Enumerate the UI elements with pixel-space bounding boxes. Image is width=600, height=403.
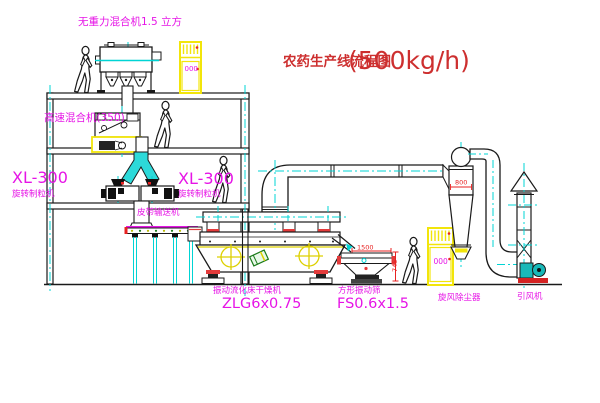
process-flow-drawing: 000 [0,0,600,403]
screen-deck-upper [341,253,392,258]
pesticide-line-flow-diagram: 000 [0,0,600,403]
screen-deck-lower [339,258,394,264]
control-cabinet-top: 000 [180,42,201,93]
cyclone-dim: 800 [455,179,467,187]
label-granulator-left-name: 旋转制粒机 [12,189,55,200]
label-cyclone: 旋风除尘器 [438,292,481,303]
cabinet-top-display: 000 [185,65,198,73]
induced-draft-fan [518,263,548,283]
screen-base-upper [355,275,379,279]
worker-figure-roof [75,46,92,92]
fluid-bed-dryer [188,206,348,284]
dryer-body [196,245,345,272]
worker-figure-floor2 [155,101,172,147]
label-dryer-name: 振动流化床干燥机 [213,285,282,296]
dryer-top-box [200,232,340,245]
worker-figure-ground [403,237,420,283]
gravity-free-mixer [95,42,161,116]
label-dryer-model: ZLG6x0.75 [222,296,301,312]
floor-slab-top [47,93,249,99]
fan-base [518,278,548,283]
mixer-body [100,47,152,72]
label-granulator-left-model: XL-300 [12,168,68,187]
title-capacity: (500kg/h) [348,46,470,75]
dryer-spring-posts [207,222,330,232]
label-high-speed-mixer: 高速混合机(350) [44,111,125,124]
mixer-outlet-box [152,52,161,60]
label-granulator-right-model: XL-300 [178,169,234,188]
control-cabinet-bottom: 000 [428,228,453,285]
label-screen-name: 方形振动筛 [338,285,381,296]
label-granulator-right-name: 旋转制粒机 [178,189,221,200]
cyclone-top-cap [452,148,471,167]
mixer-discharge-pipe [122,86,133,114]
cyclone-inlet [443,165,449,189]
cabinet-bottom-display: 000 [434,257,449,266]
screen-height-dim: 745 [391,260,399,272]
label-belt-conveyor: 皮带输送机 [137,207,180,218]
mixer-hoppers [106,72,146,86]
conveyor-legs [132,234,194,284]
cyclone-to-fan-duct [470,149,518,277]
label-screen-model: FS0.6x1.5 [337,296,409,312]
label-gravity-mixer: 无重力混合机1.5 立方 [78,15,182,28]
label-fan: 引风机 [517,291,543,302]
screen-width-dim: 1500 [357,244,374,252]
vibrating-screen: 1500 745 [337,244,399,284]
screen-base-lower [351,279,382,284]
